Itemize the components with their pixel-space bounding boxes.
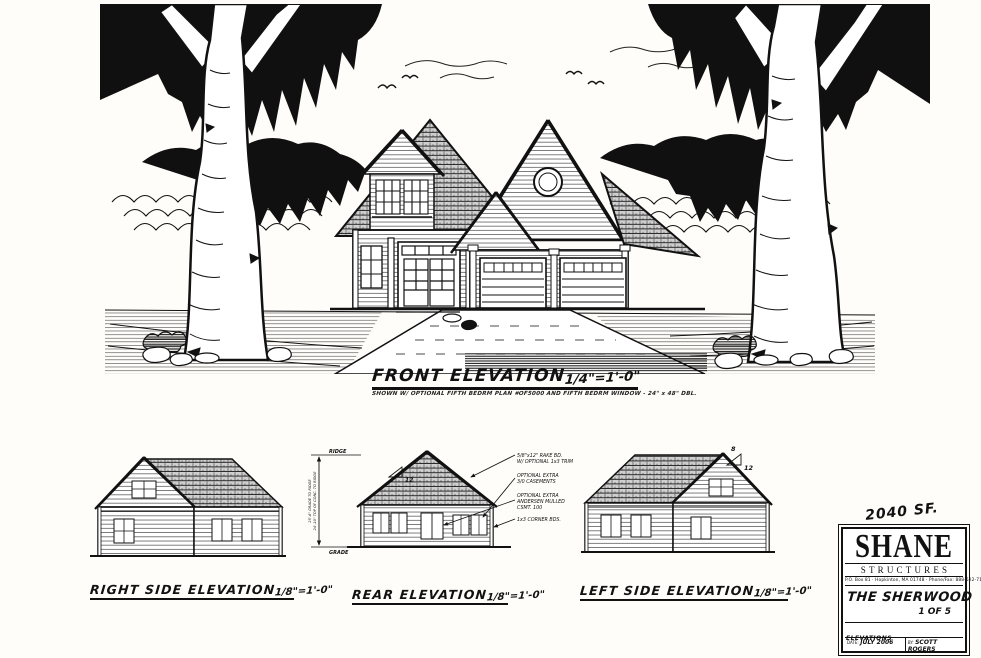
by-field: BY: SCOTT ROGERS [906,638,963,651]
left-pitch-run: 12 [744,464,754,472]
title-block: 2040 SF. SHANE STRUCTURES P.O. Box 81 · … [841,504,967,653]
title-block-box: SHANE STRUCTURES P.O. Box 81 · Hopkinton… [841,527,967,653]
left-side-elevation-scale: 1/8"=1'-0" [754,586,813,600]
garage-door-right [560,258,626,308]
garage-door-left [480,258,546,308]
floor-area-label: 2040 SF. [840,498,963,527]
rear-elevation-scale: 1/8"=1'-0" [487,590,546,604]
rear-annotations: 5/8"x12" RAKE BD. W/ OPTIONAL 1x3 TRIM O… [516,453,574,523]
rear-elevation-label: REAR ELEVATION 1/8"=1'-0" [352,587,508,605]
svg-text:ANDERSEN MULLED: ANDERSEN MULLED [516,499,565,505]
left-window [361,246,382,288]
front-elevation-note: SHOWN W/ OPTIONAL FIFTH BEDRM PLAN #OF50… [372,391,697,397]
sheet-number: 1 OF 5 [847,605,961,617]
porch-post [388,238,394,308]
svg-text:1x3 CORNER BDS.: 1x3 CORNER BDS. [517,517,561,523]
right-side-elevation-drawing [86,449,291,567]
left-side-elevation-drawing: 8 12 [575,443,780,565]
company-logo: SHANE [843,524,965,562]
by-label: BY: [908,640,914,645]
birds [378,72,604,89]
drawing-sheet: FRONT ELEVATION 1/4"=1'-0" SHOWN W/ OPTI… [0,0,981,658]
left-side-elevation-title: LEFT SIDE ELEVATION [579,583,755,598]
front-elevation-drawing [50,4,930,374]
svg-text:5/8"x12" RAKE BD.: 5/8"x12" RAKE BD. [517,453,562,459]
date-value: JULY 2006 [860,639,893,646]
svg-text:OPTIONAL EXTRA: OPTIONAL EXTRA [517,493,559,499]
svg-text:CSMT. 100: CSMT. 100 [517,505,542,511]
grade-label: GRADE [329,550,349,556]
rear-pitch-value: 12 [405,477,413,484]
front-elevation-scale: 1/4"=1'-0" [564,369,641,388]
left-pitch-rise: 8 [731,445,736,453]
company-address: P.O. Box 81 · Hopkinton, MA 01748 · Phon… [845,577,963,587]
svg-text:OPTIONAL EXTRA: OPTIONAL EXTRA [517,473,559,479]
svg-text:3/0 CASEMENTS: 3/0 CASEMENTS [517,479,556,485]
front-elevation-label: FRONT ELEVATION 1/4"=1'-0" [372,366,638,390]
ridge-grade-dimension [311,455,361,547]
left-side-elevation-label: LEFT SIDE ELEVATION 1/8"=1'-0" [580,583,788,601]
dimension-text-1: 25'-6" GRADE TO RIDGE [308,479,312,523]
front-elevation-title: FRONT ELEVATION [371,366,566,386]
dimension-text-2: 24'-10" TOP OF CONC. TO RIDGE [313,471,317,531]
right-side-elevation-title: RIGHT SIDE ELEVATION [89,582,276,597]
company-logo-sub: STRUCTURES [845,563,963,577]
right-side-elevation-scale: 1/8"=1'-0" [275,585,334,599]
svg-text:W/ OPTIONAL 1x3 TRIM: W/ OPTIONAL 1x3 TRIM [517,459,574,465]
date-label: DATE: [847,640,859,645]
right-side-elevation-label: RIGHT SIDE ELEVATION 1/8"=1'-0" [90,582,294,600]
plan-name: THE SHERWOOD [846,590,961,605]
rear-elevation-drawing: RIDGE GRADE 25'-6" GRADE TO RIDGE 24'-10… [303,441,603,571]
ridge-label: RIDGE [329,449,347,455]
date-field: DATE: JULY 2006 [845,638,906,651]
cloud-lines [405,47,700,79]
rear-elevation-title: REAR ELEVATION [351,587,488,602]
gable-vent [534,168,562,196]
